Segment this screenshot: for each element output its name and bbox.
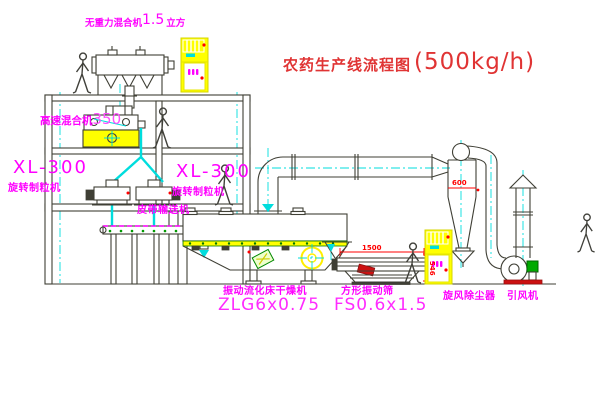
control-cabinet-lower [425,230,452,284]
label-gravity-free-mixer-name: 无重力混合机 [85,15,142,29]
person-figure [73,53,91,93]
draft-fan-machine [501,256,542,284]
label-granulator-left-name: 旋转制粒机 [8,184,61,194]
exhaust-duct [254,154,448,214]
dimension-sieve-height: 546 [428,261,436,276]
label-fan: 引风机 [507,292,539,302]
title-capacity: (500kg/h) [414,49,535,75]
label-belt-conveyor: 皮带输送机 [137,206,190,216]
dimension-sieve-length: 1500 [362,244,382,252]
label-granulator-center-model: XL-300 [176,163,251,181]
cyclone-machine [448,144,506,270]
control-cabinet-upper [181,38,208,92]
label-gravity-free-mixer: 无重力混合机 1.5 立方 [85,12,185,29]
label-cyclone: 旋风除尘器 [443,292,496,302]
label-gravity-free-mixer-volume: 1.5 [142,12,164,28]
label-high-speed-mixer-name: 高速混合机 [40,113,93,128]
label-high-speed-mixer-model: 350 [93,110,122,128]
label-dryer-model: ZLG6x0.75 [218,297,320,314]
person-figure [578,214,595,252]
rotary-granulator-left [86,180,132,205]
label-high-speed-mixer: 高速混合机 350 [40,110,121,128]
label-sieve-model: FS0.6x1.5 [334,297,427,314]
dimension-cyclone: 600 [452,179,467,187]
label-granulator-center-name: 旋转制粒机 [172,188,225,198]
cad-flow-diagram: 600 1500 546 农药生产线流程图 (500kg/h) 无重力混合机 1… [0,0,600,403]
label-gravity-free-mixer-unit: 立方 [166,15,185,29]
diagram-title: 农药生产线流程图 (500kg/h) [283,49,535,75]
fluid-bed-dryer-machine [183,208,347,284]
label-granulator-left-model: XL-300 [13,159,88,177]
title-text: 农药生产线流程图 [283,54,411,75]
